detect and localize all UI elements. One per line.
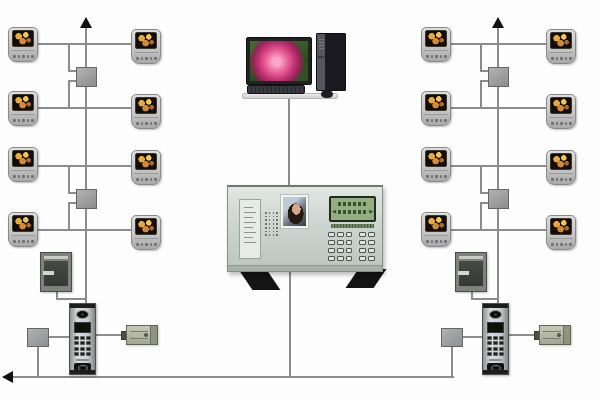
monitor-groove bbox=[134, 238, 158, 239]
directory-entry-line bbox=[244, 212, 256, 213]
indoor-monitor bbox=[546, 150, 576, 185]
door-display-speaker bbox=[74, 322, 91, 333]
console-keypad-row bbox=[328, 248, 377, 253]
door-keypad bbox=[487, 336, 504, 356]
floor-distributor bbox=[488, 67, 509, 87]
psu-label-strip bbox=[459, 256, 483, 259]
junction-wire bbox=[463, 336, 482, 338]
directory-entry-line bbox=[244, 237, 253, 238]
monitor-buttons bbox=[426, 175, 447, 178]
lcd-screen: ◀ ▶ bbox=[331, 198, 374, 220]
monitor-buttons bbox=[13, 55, 34, 58]
console-keypad-row bbox=[328, 256, 377, 261]
monitor-screen bbox=[550, 97, 572, 114]
branch-line bbox=[450, 229, 548, 231]
door-station bbox=[482, 303, 509, 375]
branch-line bbox=[450, 165, 548, 167]
branch-jog bbox=[480, 80, 482, 109]
pc-monitor bbox=[246, 37, 312, 85]
console-key bbox=[328, 232, 335, 237]
tower-drive-slot bbox=[318, 56, 324, 58]
door-display-speaker bbox=[487, 322, 504, 333]
monitor-buttons bbox=[136, 122, 157, 125]
console-key bbox=[368, 248, 375, 253]
door-station bbox=[69, 303, 96, 375]
monitor-screen bbox=[550, 153, 572, 170]
console-key bbox=[346, 248, 353, 253]
console-key bbox=[328, 256, 335, 261]
indoor-monitor bbox=[421, 212, 451, 247]
floor-distributor bbox=[76, 189, 97, 209]
management-console: ◀ ▶ bbox=[227, 185, 383, 272]
monitor-screen bbox=[135, 32, 157, 49]
indoor-monitor bbox=[546, 94, 576, 129]
indoor-monitor bbox=[421, 27, 451, 62]
monitor-buttons bbox=[13, 119, 34, 122]
ground-bus-line bbox=[10, 376, 454, 378]
monitor-screen bbox=[550, 32, 572, 49]
console-speaker-grille bbox=[264, 211, 279, 237]
psu-sticker bbox=[458, 271, 469, 275]
door-camera bbox=[76, 310, 89, 319]
monitor-groove bbox=[134, 173, 158, 174]
console-base bbox=[228, 265, 382, 271]
lock-vent-line bbox=[543, 338, 561, 339]
electric-lock bbox=[126, 325, 158, 345]
entrance-junction-box bbox=[27, 328, 49, 347]
monitor-buttons bbox=[13, 175, 34, 178]
branch-line bbox=[36, 229, 132, 231]
lcd-text-row bbox=[338, 202, 367, 206]
indoor-monitor bbox=[8, 91, 38, 126]
door-top-cap bbox=[483, 304, 508, 308]
door-top-cap bbox=[70, 304, 95, 308]
indoor-monitor bbox=[8, 27, 38, 62]
monitor-buttons bbox=[136, 243, 157, 246]
up-arrow-icon bbox=[492, 17, 504, 28]
power-wire bbox=[56, 298, 87, 300]
console-key bbox=[328, 240, 335, 245]
branch-jog bbox=[480, 202, 482, 231]
door-camera bbox=[489, 310, 502, 319]
monitor-screen bbox=[12, 94, 34, 111]
pc-tower bbox=[316, 33, 346, 91]
monitor-screen bbox=[135, 97, 157, 114]
junction-wire bbox=[49, 336, 69, 338]
pc-to-console-link bbox=[288, 97, 290, 186]
bus-drop bbox=[451, 347, 453, 377]
console-key bbox=[368, 256, 375, 261]
monitor-groove bbox=[11, 235, 35, 236]
pc-keyboard bbox=[247, 85, 305, 94]
monitor-screen bbox=[425, 150, 447, 167]
console-to-bus-link bbox=[289, 272, 291, 378]
branch-line bbox=[36, 43, 132, 45]
lock-vent-line bbox=[130, 338, 148, 339]
console-keypad-row bbox=[328, 240, 377, 245]
branch-line bbox=[36, 107, 132, 109]
monitor-groove bbox=[549, 117, 573, 118]
monitor-screen bbox=[12, 215, 34, 232]
monitor-screen bbox=[425, 94, 447, 111]
console-key bbox=[359, 232, 366, 237]
lock-keyhole bbox=[144, 333, 148, 337]
monitor-groove bbox=[134, 52, 158, 53]
branch-jog bbox=[68, 80, 70, 109]
monitor-groove bbox=[11, 170, 35, 171]
branch-jog bbox=[68, 165, 70, 194]
console-key bbox=[337, 248, 344, 253]
branch-line bbox=[450, 107, 548, 109]
monitor-groove bbox=[549, 173, 573, 174]
indoor-monitor bbox=[131, 215, 161, 250]
monitor-screen bbox=[425, 30, 447, 47]
tower-vents bbox=[319, 39, 324, 51]
console-keypad-row bbox=[328, 232, 377, 237]
monitor-screen bbox=[135, 153, 157, 170]
monitor-buttons bbox=[551, 57, 572, 60]
console-key bbox=[328, 248, 335, 253]
indoor-monitor bbox=[546, 29, 576, 64]
console-video-screen bbox=[280, 194, 309, 229]
console-key bbox=[337, 240, 344, 245]
power-supply bbox=[40, 252, 72, 292]
monitor-groove bbox=[424, 114, 448, 115]
monitor-screen bbox=[425, 215, 447, 232]
pc-screen-rose-wallpaper bbox=[250, 41, 308, 81]
monitor-groove bbox=[424, 235, 448, 236]
floor-distributor bbox=[76, 67, 97, 87]
branch-jog bbox=[480, 43, 482, 72]
lock-vent-line bbox=[543, 331, 561, 332]
monitor-groove bbox=[424, 170, 448, 171]
floor-distributor bbox=[488, 189, 509, 209]
door-keypad bbox=[74, 336, 91, 356]
console-directory-panel bbox=[239, 199, 261, 259]
portrait-image bbox=[283, 197, 306, 226]
monitor-screen bbox=[12, 30, 34, 47]
monitor-groove bbox=[134, 117, 158, 118]
monitor-buttons bbox=[426, 55, 447, 58]
directory-entry-line bbox=[244, 222, 256, 223]
indoor-monitor bbox=[131, 29, 161, 64]
psu-label-strip bbox=[44, 256, 68, 259]
lcd-right-arrow-icon: ▶ bbox=[369, 209, 373, 214]
directory-entry-line bbox=[244, 227, 253, 228]
monitor-buttons bbox=[551, 243, 572, 246]
indoor-monitor bbox=[421, 147, 451, 182]
power-wire bbox=[471, 298, 499, 300]
monitor-buttons bbox=[426, 119, 447, 122]
branch-jog bbox=[68, 43, 70, 72]
pc-mouse bbox=[321, 90, 333, 98]
directory-entry-line bbox=[244, 217, 253, 218]
console-key bbox=[337, 232, 344, 237]
branch-jog bbox=[480, 165, 482, 194]
electric-lock bbox=[539, 325, 571, 345]
power-supply bbox=[455, 252, 487, 292]
console-key bbox=[346, 240, 353, 245]
lock-end-cap bbox=[563, 326, 570, 344]
door-speaker-slot bbox=[489, 359, 502, 361]
lock-vent-line bbox=[130, 331, 148, 332]
monitor-buttons bbox=[136, 57, 157, 60]
console-key bbox=[346, 232, 353, 237]
lock-wire bbox=[96, 334, 121, 336]
monitor-groove bbox=[549, 52, 573, 53]
monitor-buttons bbox=[136, 178, 157, 181]
door-bottom-cap bbox=[70, 370, 95, 374]
monitor-screen bbox=[12, 150, 34, 167]
entrance-junction-box bbox=[441, 328, 463, 347]
branch-line bbox=[450, 43, 548, 45]
monitor-buttons bbox=[426, 240, 447, 243]
bus-drop bbox=[37, 347, 39, 377]
door-speaker-slot bbox=[76, 359, 89, 361]
console-key bbox=[359, 240, 366, 245]
door-bottom-cap bbox=[483, 370, 508, 374]
directory-entry-line bbox=[244, 242, 256, 243]
console-keypad bbox=[328, 232, 377, 261]
console-lcd-label bbox=[331, 224, 374, 228]
indoor-monitor bbox=[131, 150, 161, 185]
monitor-buttons bbox=[551, 178, 572, 181]
console-key bbox=[368, 232, 375, 237]
lcd-left-arrow-icon: ◀ bbox=[332, 209, 336, 214]
indoor-monitor bbox=[8, 147, 38, 182]
console-key bbox=[359, 248, 366, 253]
monitor-buttons bbox=[13, 240, 34, 243]
lcd-text-row bbox=[338, 210, 367, 214]
console-foot-left bbox=[240, 271, 281, 290]
diagram-canvas: ◀ ▶ bbox=[0, 0, 600, 400]
directory-entry-line bbox=[244, 207, 253, 208]
up-arrow-icon bbox=[80, 17, 92, 28]
indoor-monitor bbox=[421, 91, 451, 126]
monitor-groove bbox=[424, 50, 448, 51]
branch-line bbox=[36, 165, 132, 167]
indoor-monitor bbox=[131, 94, 161, 129]
monitor-groove bbox=[11, 50, 35, 51]
monitor-screen bbox=[135, 218, 157, 235]
psu-sticker bbox=[43, 271, 54, 275]
console-key bbox=[368, 240, 375, 245]
console-key bbox=[359, 256, 366, 261]
monitor-buttons bbox=[551, 122, 572, 125]
monitor-groove bbox=[549, 238, 573, 239]
console-lcd: ◀ ▶ bbox=[329, 196, 376, 222]
console-key bbox=[337, 256, 344, 261]
indoor-monitor bbox=[546, 215, 576, 250]
lock-keyhole bbox=[557, 333, 561, 337]
lock-end-cap bbox=[150, 326, 157, 344]
monitor-groove bbox=[11, 114, 35, 115]
lock-wire bbox=[509, 334, 534, 336]
indoor-monitor bbox=[8, 212, 38, 247]
console-key bbox=[346, 256, 353, 261]
directory-entry-line bbox=[244, 232, 256, 233]
monitor-screen bbox=[550, 218, 572, 235]
left-arrow-icon bbox=[2, 371, 13, 383]
branch-jog bbox=[68, 202, 70, 231]
